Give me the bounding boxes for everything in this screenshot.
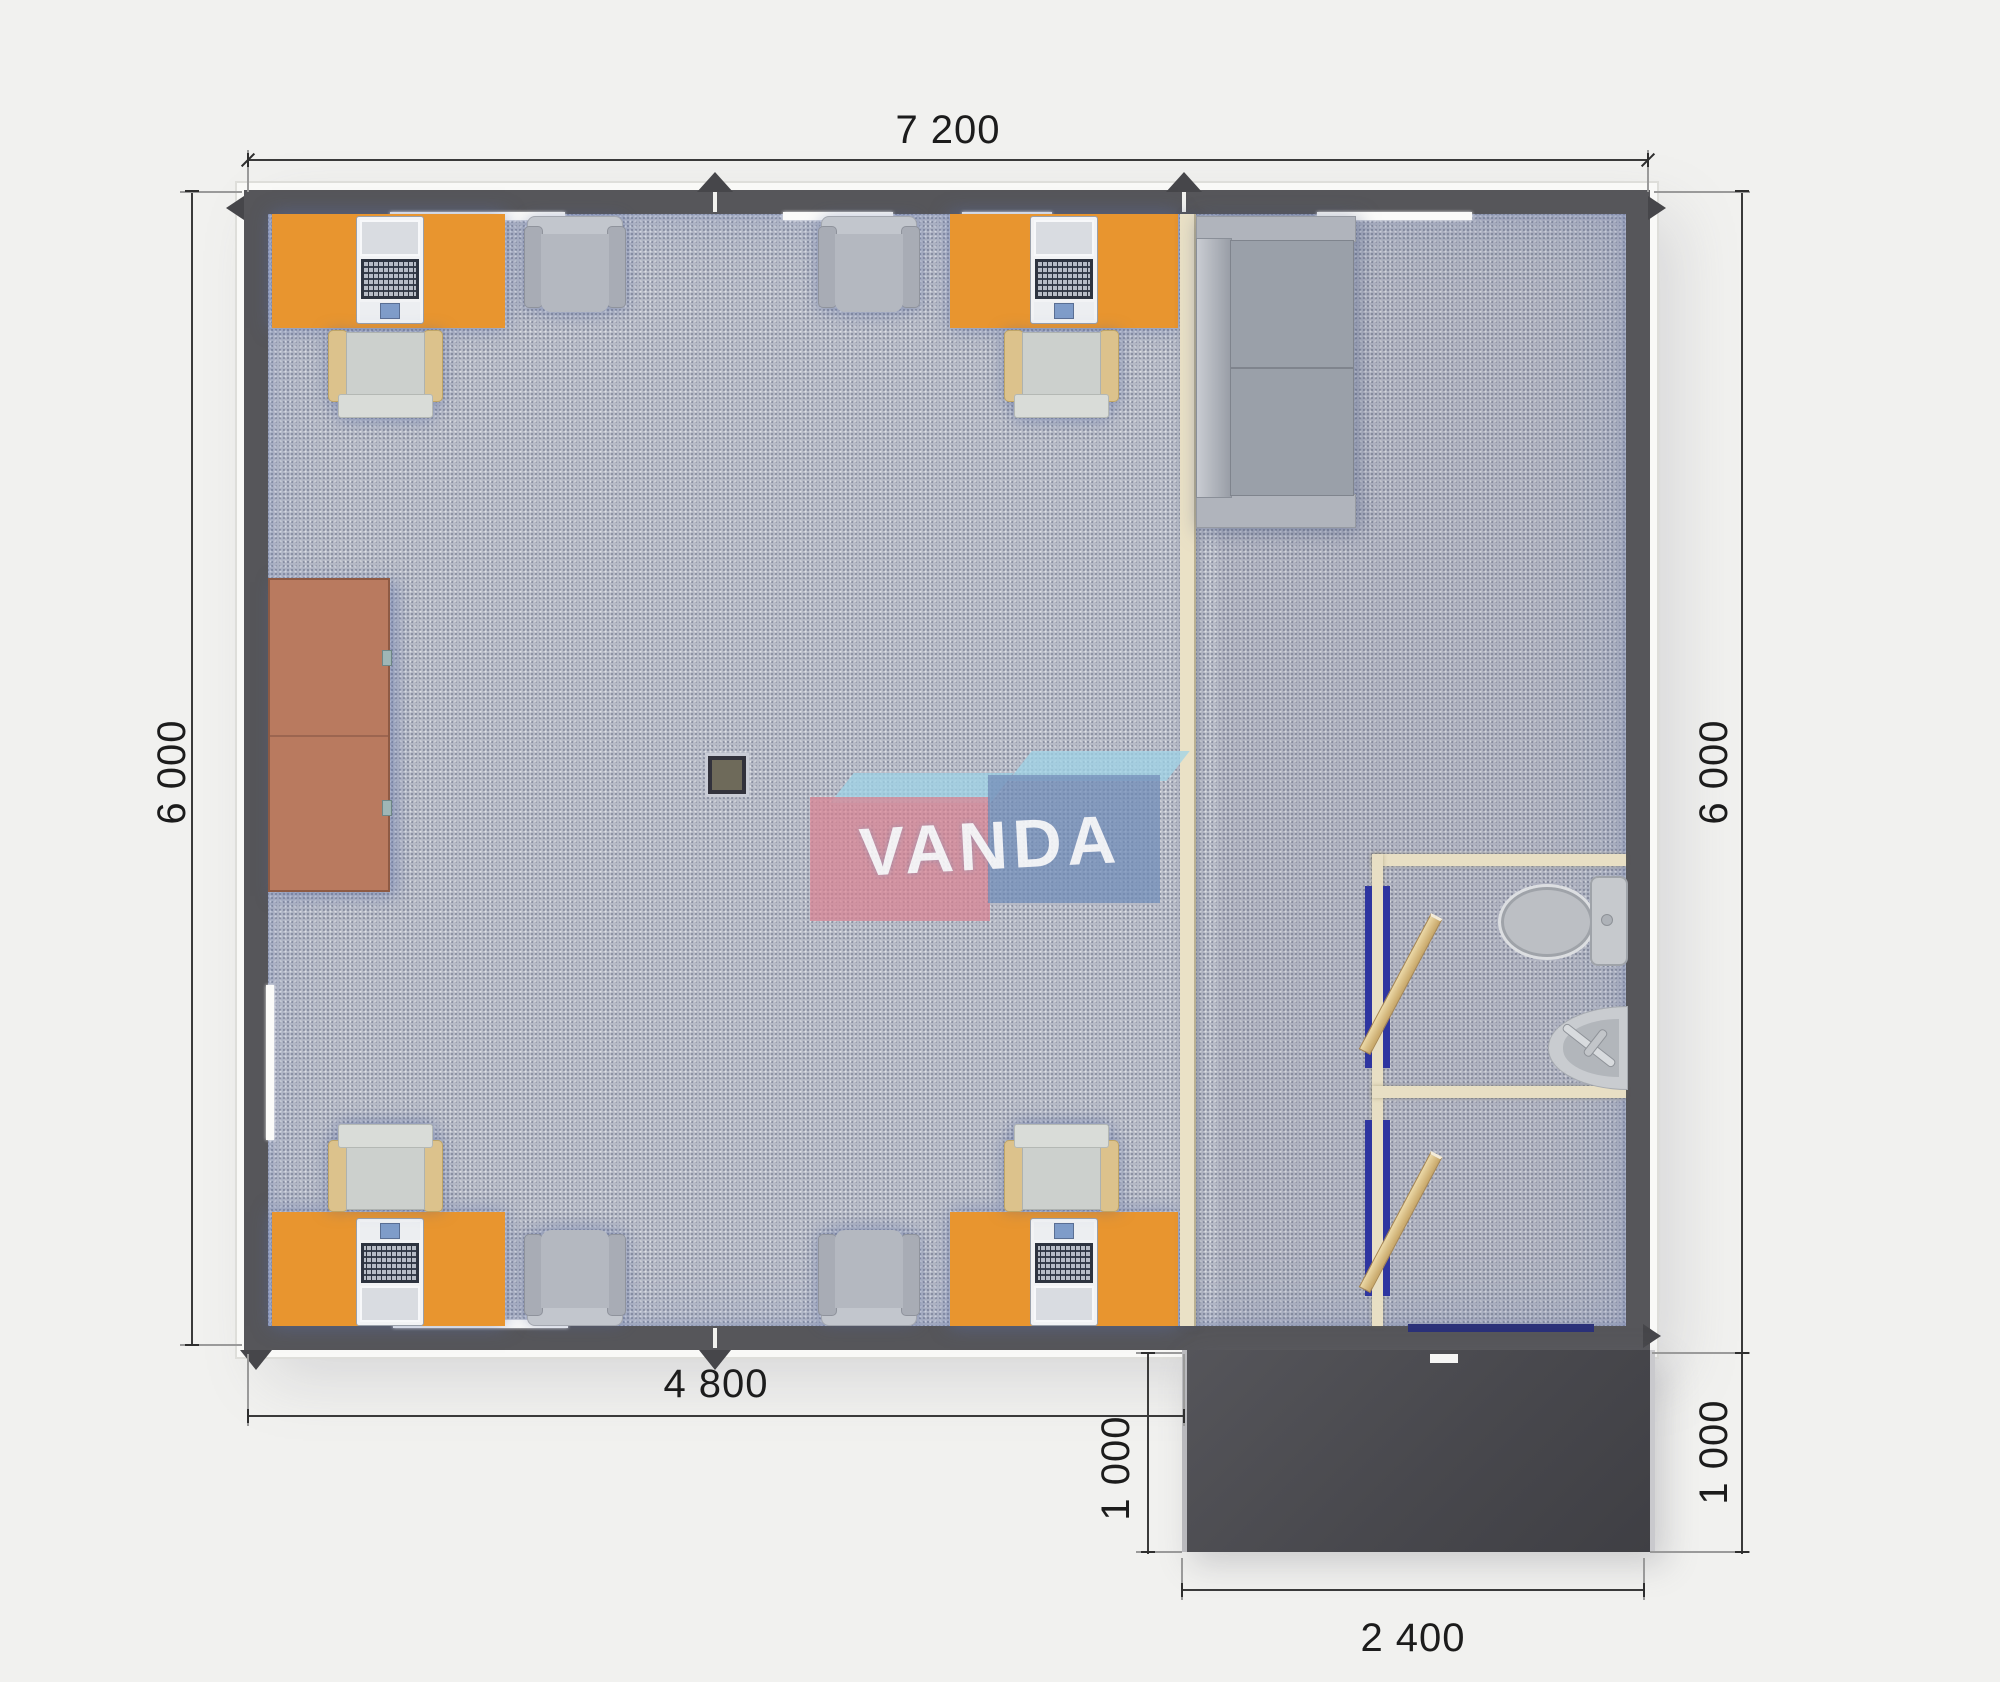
- laptop-lid: [360, 220, 420, 256]
- chair-armrest: [1099, 1140, 1119, 1212]
- bathroom-wall-middle: [1372, 1086, 1626, 1098]
- dimension-tick: [1181, 1583, 1183, 1597]
- watermark-logo: VANDA: [790, 745, 1190, 945]
- office-chair-top-left: [328, 330, 443, 418]
- laptop-lid: [1034, 220, 1094, 256]
- toilet-tank: [1590, 876, 1628, 966]
- dimension-line-porch-bottom: [1182, 1589, 1645, 1591]
- chair-backrest: [338, 394, 433, 418]
- dimension-label-porch-bottom: 2 400: [1263, 1618, 1563, 1658]
- laptop-icon: [1030, 1218, 1098, 1326]
- armchair-armrest: [607, 226, 626, 308]
- floor-drain: [708, 756, 746, 794]
- armchair-seat: [835, 234, 903, 312]
- dimension-tick: [185, 190, 199, 192]
- chair-seat: [346, 1144, 425, 1210]
- chair-seat: [346, 332, 425, 398]
- dimension-label-bottom-inner: 4 800: [566, 1364, 866, 1404]
- sofa-backrest: [1196, 238, 1232, 498]
- cabinet-handle: [382, 800, 392, 816]
- laptop-trackpad: [1054, 1223, 1074, 1239]
- toilet-bowl: [1498, 884, 1596, 960]
- dimension-tick: [1735, 190, 1749, 192]
- visitor-armchair: [818, 216, 920, 314]
- floor-plan-canvas: VANDA 7 200 6 000 6 000 1 000 4 800 1 00…: [0, 0, 2000, 1682]
- laptop-keyboard: [361, 259, 419, 299]
- entrance-door-threshold: [1408, 1324, 1594, 1332]
- dimension-line-bottom-inner: [248, 1415, 1185, 1417]
- dimension-label-left: 6 000: [152, 662, 192, 882]
- visitor-armchair: [524, 1228, 626, 1326]
- laptop-keys: [364, 1246, 416, 1280]
- cabinet-handle: [382, 650, 392, 666]
- sofa-armrest: [1196, 494, 1356, 528]
- corner-marker-icon: [1648, 196, 1666, 220]
- armchair-seat: [541, 234, 609, 312]
- door-handle: [1430, 1354, 1458, 1363]
- chair-armrest: [423, 1140, 443, 1212]
- wall-joint-notch: [1182, 192, 1186, 212]
- corner-marker-icon: [1643, 1324, 1661, 1348]
- bathroom-wall-top: [1372, 854, 1626, 866]
- dimension-tick: [185, 1344, 199, 1346]
- dimension-tick: [1735, 1352, 1749, 1354]
- laptop-keys: [1038, 1246, 1090, 1280]
- chair-backrest: [1014, 394, 1109, 418]
- laptop-icon: [1030, 216, 1098, 324]
- dimension-line-right: [1741, 190, 1743, 1554]
- dimension-label-right: 6 000: [1694, 662, 1734, 882]
- laptop-keyboard: [361, 1243, 419, 1283]
- laptop-lid: [360, 1286, 420, 1322]
- corner-marker-icon: [240, 1350, 272, 1370]
- dimension-line-top: [248, 159, 1648, 161]
- dimension-line-porch-left: [1147, 1352, 1149, 1554]
- office-chair-bottom-right: [1004, 1124, 1119, 1212]
- storage-cabinet: [268, 578, 390, 892]
- dimension-label-porch-left: 1 000: [1096, 1358, 1136, 1578]
- laptop-trackpad: [380, 303, 400, 319]
- laptop-trackpad: [1054, 303, 1074, 319]
- dimension-tick: [1141, 1352, 1155, 1354]
- laptop-keys: [1038, 262, 1090, 296]
- office-chair-bottom-left: [328, 1124, 443, 1212]
- chair-armrest: [328, 1140, 348, 1212]
- visitor-armchair: [818, 1228, 920, 1326]
- chair-backrest: [338, 1124, 433, 1148]
- module-marker-icon: [1166, 172, 1202, 192]
- chair-armrest: [423, 330, 443, 402]
- chair-armrest: [1004, 330, 1024, 402]
- sofa-cushion: [1230, 240, 1354, 368]
- laptop-icon: [356, 216, 424, 324]
- armchair-seat: [541, 1230, 609, 1308]
- dimension-tick: [1643, 1583, 1645, 1597]
- door-frame-wc: [1383, 886, 1390, 1068]
- corner-marker-icon: [226, 196, 244, 220]
- chair-armrest: [1099, 330, 1119, 402]
- window-left: [266, 985, 274, 1140]
- wall-joint-notch: [713, 192, 717, 212]
- armchair-seat: [835, 1230, 903, 1308]
- dimension-tick: [1183, 1409, 1185, 1423]
- porch-deck: [1182, 1350, 1655, 1552]
- dimension-tick: [1141, 1551, 1155, 1553]
- door-frame-storage: [1383, 1120, 1390, 1296]
- laptop-keyboard: [1035, 259, 1093, 299]
- visitor-armchair: [524, 216, 626, 314]
- office-chair-top-right: [1004, 330, 1119, 418]
- module-marker-icon: [697, 172, 733, 192]
- laptop-keys: [364, 262, 416, 296]
- armchair-armrest: [901, 226, 920, 308]
- armchair-armrest: [901, 1234, 920, 1316]
- chair-seat: [1022, 1144, 1101, 1210]
- chair-backrest: [1014, 1124, 1109, 1148]
- wall-joint-notch: [713, 1328, 717, 1348]
- laptop-keyboard: [1035, 1243, 1093, 1283]
- dimension-label-top: 7 200: [798, 110, 1098, 150]
- laptop-lid: [1034, 1286, 1094, 1322]
- armchair-armrest: [607, 1234, 626, 1316]
- chair-armrest: [1004, 1140, 1024, 1212]
- chair-seat: [1022, 332, 1101, 398]
- laptop-icon: [356, 1218, 424, 1326]
- dimension-tick: [247, 1409, 249, 1423]
- dimension-tick: [1735, 1551, 1749, 1553]
- toilet-flush-button: [1601, 914, 1613, 926]
- dimension-label-porch-right: 1 000: [1694, 1342, 1734, 1562]
- sofa: [1196, 216, 1356, 528]
- sofa-cushion: [1230, 368, 1354, 496]
- laptop-trackpad: [380, 1223, 400, 1239]
- chair-armrest: [328, 330, 348, 402]
- cabinet-divider: [270, 735, 388, 737]
